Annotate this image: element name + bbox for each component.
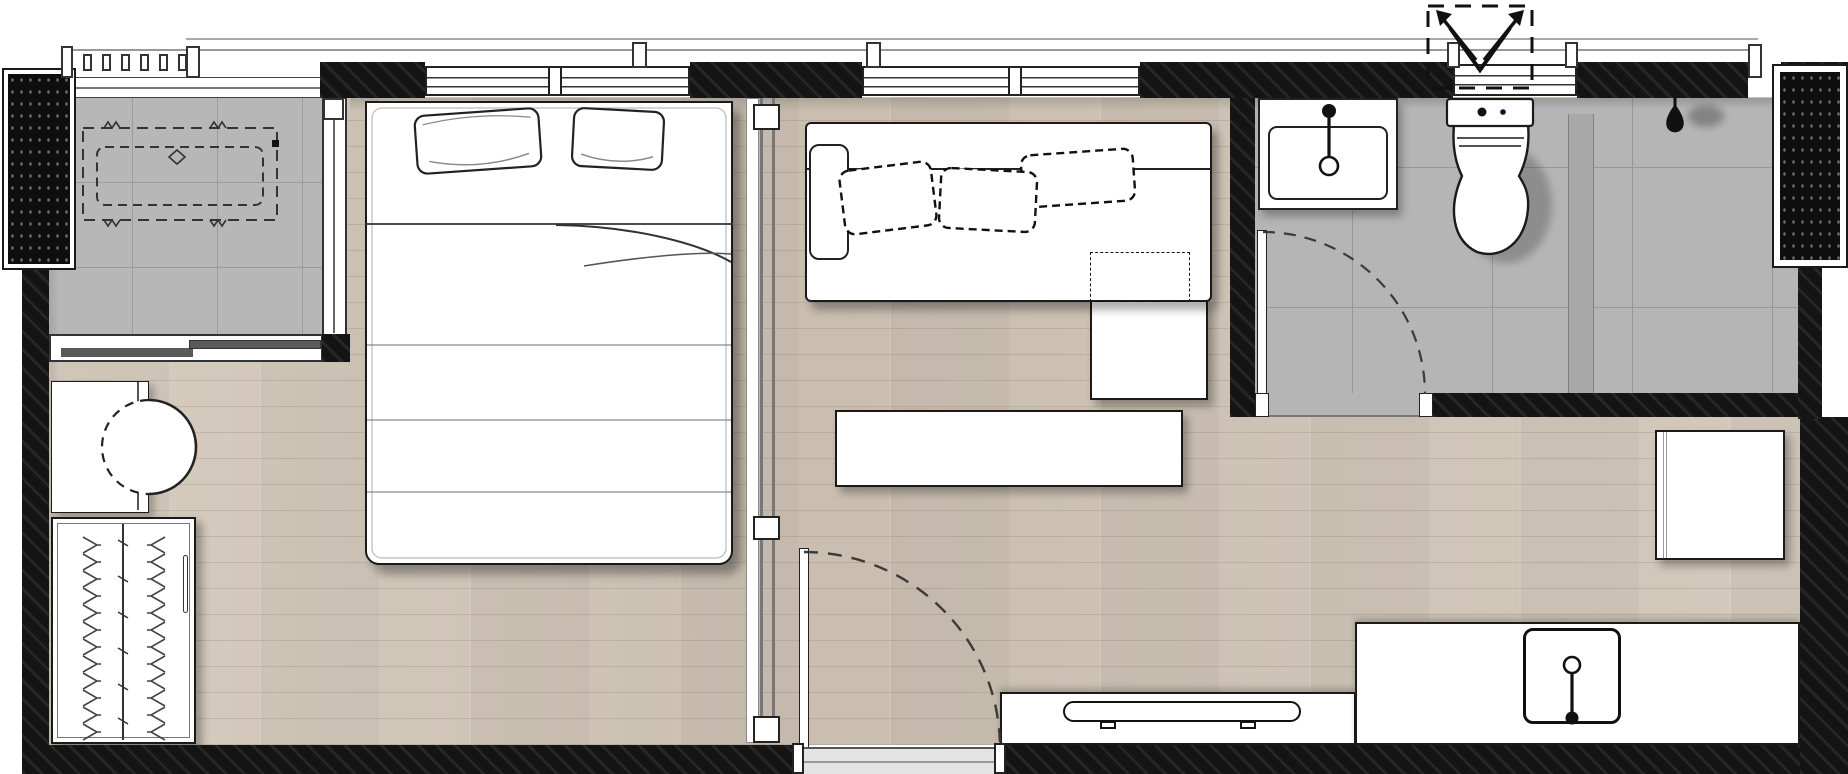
partition-stop — [753, 104, 780, 130]
refrigerator — [1655, 430, 1785, 560]
bathroom-door-threshold — [1269, 393, 1419, 417]
partition-track-rail — [760, 98, 763, 743]
frame-post — [866, 42, 881, 68]
frame-post — [632, 42, 647, 68]
desk-edge-line — [137, 382, 139, 510]
column-west — [8, 74, 70, 264]
window-mullion — [1008, 66, 1022, 96]
wall-top — [690, 62, 862, 98]
shower-screen — [1568, 114, 1594, 417]
partition-track-rail — [772, 98, 775, 743]
window-panel — [61, 348, 193, 357]
railing-baluster — [83, 54, 92, 71]
entrance-door-leaf — [799, 548, 809, 748]
column-east — [1780, 72, 1840, 260]
bathroom-door-jamb — [1255, 393, 1269, 417]
railing-baluster — [159, 54, 168, 71]
frame-post — [1748, 44, 1762, 78]
frame-post — [1447, 42, 1460, 68]
tv — [1063, 701, 1301, 722]
refrigerator-door-line — [1663, 432, 1667, 558]
floor-plan — [0, 0, 1848, 774]
wall-top — [320, 62, 425, 98]
wardrobe-handle — [183, 555, 188, 613]
tv-foot — [1100, 721, 1116, 729]
balcony-floor — [49, 97, 322, 336]
bed — [365, 101, 733, 565]
sliding-partition-leaf — [746, 98, 759, 743]
outer-sill-line — [61, 49, 1758, 51]
balcony-glass-partition — [322, 97, 347, 337]
partition-stop — [753, 516, 780, 540]
wall-balcony-pier — [322, 334, 350, 362]
bedroom-window — [425, 66, 690, 96]
glass-center-line — [333, 101, 335, 333]
living-window — [862, 66, 1140, 96]
frame-post — [186, 46, 200, 78]
bathroom-door-jamb — [1419, 393, 1433, 417]
wall-top — [1577, 62, 1748, 98]
wall-south — [22, 745, 795, 774]
balcony-parapet — [61, 77, 323, 98]
entrance-threshold — [795, 747, 998, 774]
dashed-furniture-outline — [1090, 252, 1190, 302]
wall-bathroom-west — [1230, 98, 1255, 417]
coffee-table — [835, 410, 1183, 487]
sofa-chaise — [1090, 300, 1208, 400]
desk — [51, 381, 149, 513]
sofa-back-line — [807, 168, 1210, 170]
frame-post — [1565, 42, 1578, 68]
wall-top — [1140, 62, 1453, 98]
wall-south — [998, 745, 1848, 774]
threshold-line — [795, 761, 998, 763]
glass-end-cap — [323, 98, 344, 120]
wardrobe — [51, 517, 196, 744]
washbasin — [1268, 126, 1388, 200]
railing-baluster — [140, 54, 149, 71]
wall-east — [1800, 417, 1848, 774]
partition-stop — [753, 716, 780, 743]
bathroom-door-leaf — [1257, 230, 1267, 397]
railing-baluster — [121, 54, 130, 71]
railing-corner-post — [61, 46, 73, 78]
wall-east — [1798, 256, 1822, 419]
toilet-window — [1453, 64, 1577, 96]
entrance-door-jamb — [792, 743, 804, 774]
wall-bathroom-south — [1432, 393, 1798, 417]
window-panel — [189, 340, 321, 349]
wardrobe-inner-frame — [57, 523, 190, 738]
sofa-armrest — [809, 144, 849, 260]
tv-foot — [1240, 721, 1256, 729]
vanity-counter — [1258, 98, 1398, 210]
balcony-sliding-window — [49, 334, 323, 362]
kitchen-sink — [1523, 628, 1621, 724]
entrance-door-jamb — [994, 743, 1006, 774]
railing-baluster — [102, 54, 111, 71]
parapet-line — [62, 87, 321, 89]
outer-sill-line — [186, 38, 1758, 40]
window-mullion — [548, 66, 562, 96]
